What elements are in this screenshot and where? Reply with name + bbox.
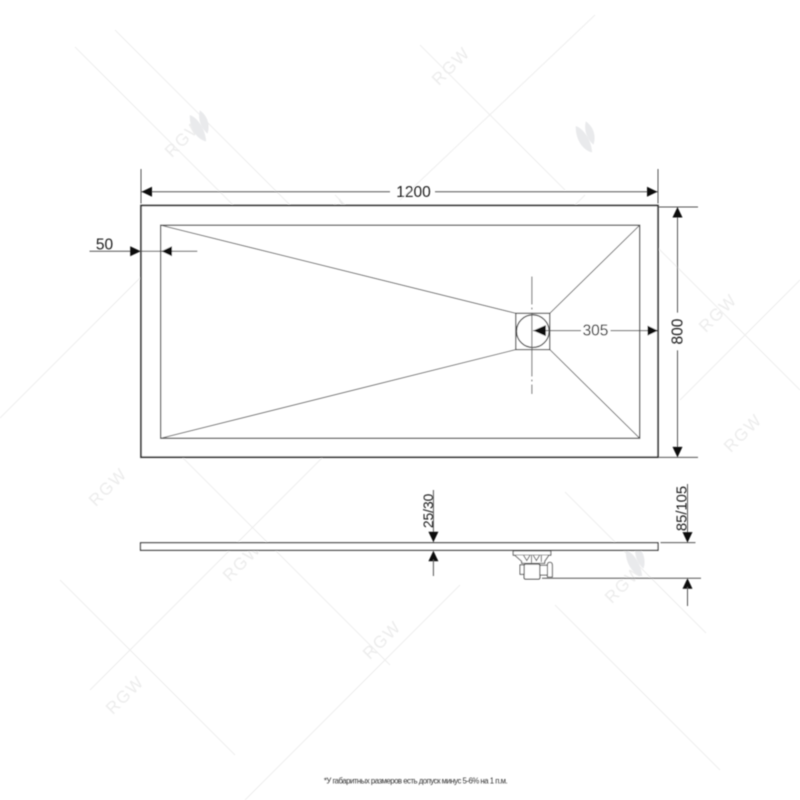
svg-text:50: 50 bbox=[96, 236, 114, 253]
svg-text:1200: 1200 bbox=[396, 184, 431, 201]
svg-text:85/105: 85/105 bbox=[674, 486, 690, 531]
svg-text:25/30: 25/30 bbox=[421, 493, 436, 528]
svg-text:305: 305 bbox=[583, 323, 609, 340]
svg-text:800: 800 bbox=[669, 318, 686, 344]
svg-text:*У габаритных размеров есть до: *У габаритных размеров есть допуск минус… bbox=[324, 776, 508, 785]
